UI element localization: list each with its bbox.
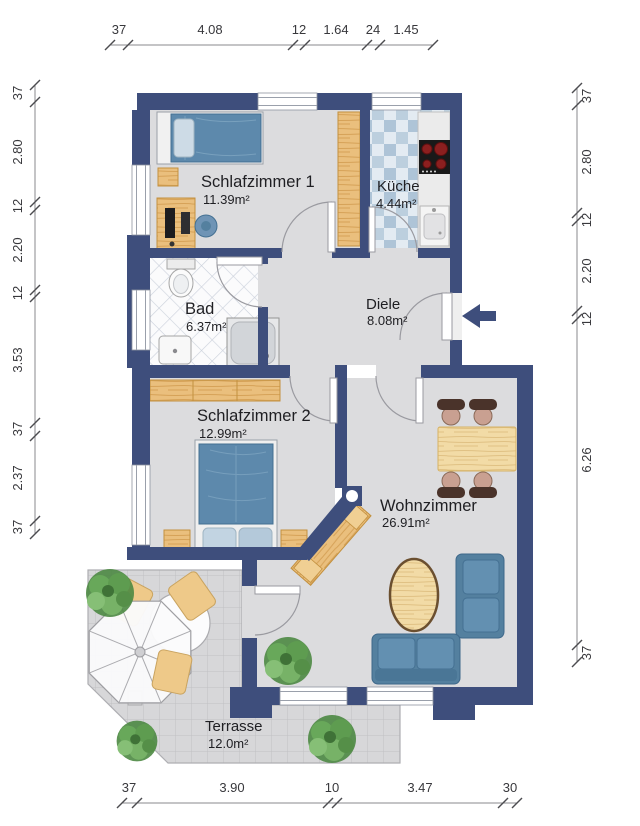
dimension-label: 3.47 xyxy=(407,780,432,795)
dimension-label: 2.20 xyxy=(10,237,25,262)
furniture-kueche xyxy=(418,112,450,248)
room-name-label: Wohnzimmer xyxy=(380,497,477,515)
dimension-label: 12 xyxy=(10,199,25,213)
window xyxy=(258,93,317,110)
dimension-label: 2.80 xyxy=(579,149,594,174)
room-area-label: 6.37m² xyxy=(186,319,227,334)
room-area-label: 11.39m² xyxy=(203,192,250,207)
room-area-label: 12.0m² xyxy=(208,736,249,751)
room-area-label: 12.99m² xyxy=(199,426,247,441)
dimension-label: 2.37 xyxy=(10,465,25,490)
burner xyxy=(422,144,432,154)
room-area-label: 4.44m² xyxy=(376,196,417,211)
coffee-table xyxy=(390,559,438,631)
plant xyxy=(308,715,356,763)
window xyxy=(280,687,347,705)
dimension-label: 12 xyxy=(10,286,25,300)
dimension-label: 37 xyxy=(112,22,126,37)
dimension-label: 12 xyxy=(579,312,594,326)
plant xyxy=(264,637,312,685)
toilet-tank xyxy=(167,259,195,269)
dimension-label: 12 xyxy=(292,22,306,37)
dimension-top: 37 4.08 12 1.64 24 1.45 xyxy=(105,22,438,50)
monitor xyxy=(165,208,175,238)
room-area-label: 8.08m² xyxy=(367,313,408,328)
burner xyxy=(435,143,448,156)
burner xyxy=(436,159,446,169)
dimension-left: 37 2.80 12 2.20 12 3.53 37 2.37 37 xyxy=(10,80,40,539)
dimension-label: 37 xyxy=(10,422,25,436)
pillow xyxy=(174,119,194,157)
window xyxy=(367,687,433,705)
window xyxy=(132,290,150,350)
dimension-bottom: 37 3.90 10 3.47 30 xyxy=(117,780,522,808)
dimension-label: 10 xyxy=(325,780,339,795)
window xyxy=(372,93,421,110)
plant xyxy=(86,569,134,617)
nightstand xyxy=(158,168,178,186)
dimension-label: 37 xyxy=(579,646,594,660)
entrance-arrow-icon xyxy=(462,304,496,328)
room-name-label: Terrasse xyxy=(205,718,263,735)
dimension-label: 2.80 xyxy=(10,139,25,164)
wardrobe xyxy=(150,380,280,401)
dimension-label: 2.20 xyxy=(579,258,594,283)
dimension-label: 37 xyxy=(579,89,594,103)
dimension-label: 1.64 xyxy=(323,22,348,37)
plant xyxy=(117,721,158,762)
dimension-right: 37 2.80 12 2.20 12 6.26 37 xyxy=(572,83,594,667)
dimension-label: 6.26 xyxy=(579,447,594,472)
pier-circle xyxy=(346,490,358,502)
window xyxy=(132,465,150,545)
wardrobe xyxy=(338,112,360,246)
floor-diele xyxy=(268,258,450,365)
room-name-label: Diele xyxy=(366,296,400,313)
dining-table xyxy=(438,427,516,471)
dimension-label: 1.45 xyxy=(393,22,418,37)
dimension-label: 24 xyxy=(366,22,380,37)
floor-plan-drawing: Schlafzimmer 1 11.39m² Küche 4.44m² Bad … xyxy=(0,0,640,826)
window xyxy=(132,165,150,235)
room-name-label: Küche xyxy=(377,178,420,195)
sofa-bottom xyxy=(372,634,460,684)
dimension-label: 12 xyxy=(579,213,594,227)
dimension-label: 3.53 xyxy=(10,347,25,372)
dimension-label: 37 xyxy=(10,86,25,100)
dimension-label: 37 xyxy=(122,780,136,795)
room-area-label: 26.91m² xyxy=(382,515,430,530)
floor-plan-canvas: Schlafzimmer 1 11.39m² Küche 4.44m² Bad … xyxy=(0,0,640,826)
room-name-label: Schlafzimmer 1 xyxy=(201,173,315,191)
burner xyxy=(423,160,431,168)
room-name-label: Schlafzimmer 2 xyxy=(197,407,311,425)
dimension-label: 3.90 xyxy=(219,780,244,795)
room-name-label: Bad xyxy=(185,300,214,318)
dimension-label: 30 xyxy=(503,780,517,795)
dimension-label: 37 xyxy=(10,520,25,534)
dimension-label: 4.08 xyxy=(197,22,222,37)
sofa-right xyxy=(456,554,504,638)
